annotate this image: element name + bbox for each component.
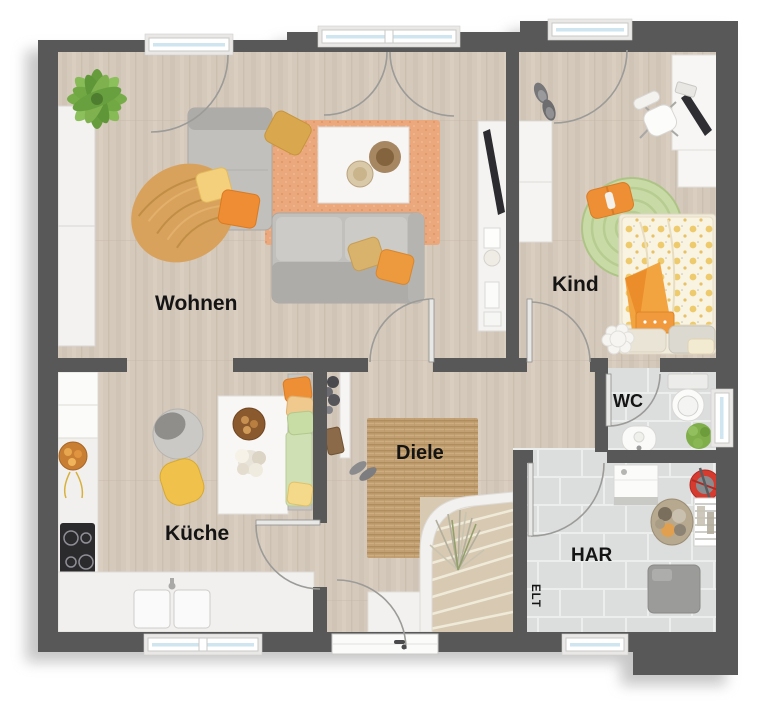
desk [672,55,718,187]
sink-basin-right [174,590,210,628]
bench-pillow-green [287,411,315,436]
label-kind: Kind [552,273,599,296]
window-har [562,634,628,655]
hand-basin-icon [622,426,656,452]
laundry-basket-icon [651,499,693,545]
flower-deco [235,449,266,477]
wall-pier-wc-left [590,358,608,372]
wall-wc-top-right [660,358,716,372]
drying-rack-icon [694,498,718,546]
wall-mid-right [433,358,527,372]
bed-pillow-small [688,339,714,354]
label-wohnen: Wohnen [155,292,237,315]
tv-sideboard [478,121,507,331]
palm-plant-icon [67,69,127,129]
bed [619,214,716,354]
label-har: HAR [571,545,612,566]
decor-roll [484,250,500,266]
floorplan: Wohnen Kind Küche Diele WC HAR ELT [0,0,775,704]
wall-diele-har [513,450,527,632]
wall-kueche-diele-upper [313,372,327,523]
nut-bowl [233,408,265,440]
label-wc: WC [613,391,643,411]
decor-books-1 [484,228,500,248]
sink-basin-left [134,590,170,628]
decor-books-2 [485,282,499,308]
label-elt: ELT [529,584,541,608]
room-kueche [58,372,315,632]
dining-table [218,396,288,514]
pillow-orange [217,189,260,229]
utility-unit-top [652,569,672,581]
coffee-table [318,127,409,203]
label-kueche: Küche [165,522,229,545]
wall-kueche-diele-lower [313,587,327,632]
kitchen-counter-left [58,372,98,581]
kitchen-counter-bottom [58,572,314,632]
bench-pillow-yellow [287,481,314,506]
dining-bench [283,374,315,510]
washing-machine-icon [614,465,658,505]
wall-wc-har [607,450,716,463]
wc-plant-icon [686,423,712,449]
window-kueche [144,634,262,655]
window-wc [711,389,733,447]
label-diele: Diele [396,442,444,464]
wall-mid-center [233,358,368,372]
wall-left [38,40,58,652]
wall-bottom-right-block [633,632,738,675]
wall-mid-left [38,358,127,372]
wall-wohnen-kind [506,52,519,372]
wall-right [716,21,738,675]
decor-books-3 [484,312,501,326]
